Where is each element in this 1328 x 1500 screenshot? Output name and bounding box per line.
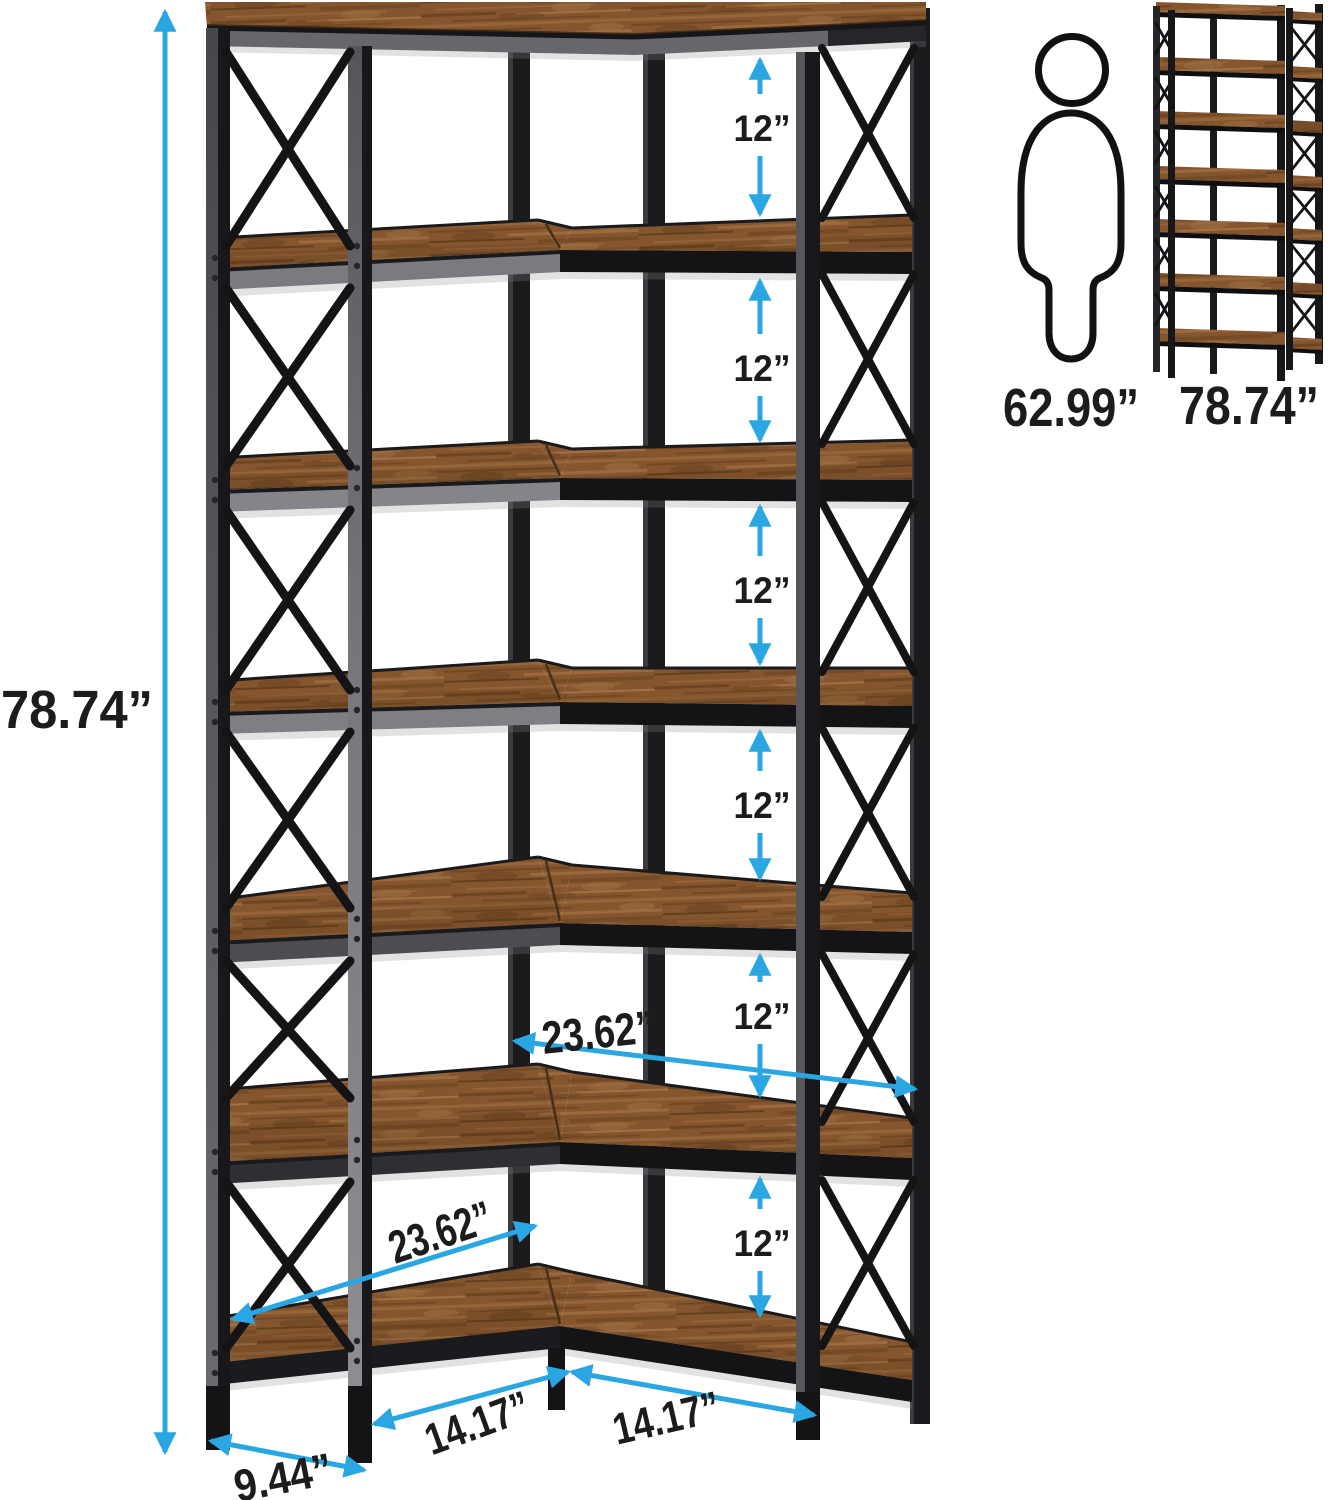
svg-text:12”: 12”: [734, 348, 791, 389]
svg-text:78.74”: 78.74”: [1179, 376, 1319, 436]
svg-text:12”: 12”: [734, 996, 791, 1037]
svg-text:12”: 12”: [734, 785, 791, 826]
svg-text:12”: 12”: [734, 1223, 791, 1264]
svg-text:12”: 12”: [734, 570, 791, 611]
svg-text:78.74”: 78.74”: [1, 680, 153, 740]
svg-text:12”: 12”: [734, 108, 791, 149]
svg-text:62.99”: 62.99”: [1003, 378, 1139, 438]
